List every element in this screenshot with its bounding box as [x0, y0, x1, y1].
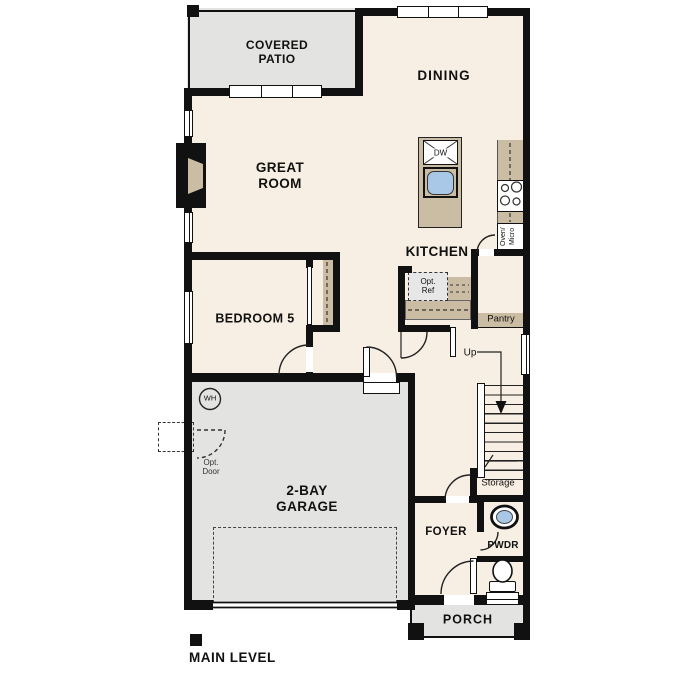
- wall-segment: [471, 249, 478, 329]
- window: [184, 291, 193, 344]
- wall-segment: [477, 502, 484, 532]
- annotation-opt-ref: Opt. Ref: [420, 277, 435, 295]
- room-label-foyer: FOYER: [425, 526, 467, 540]
- island-sink-basin: [427, 171, 454, 195]
- wall-segment: [408, 595, 443, 605]
- window: [521, 334, 530, 375]
- wall-segment: [470, 468, 477, 503]
- hall-door-jamb: [450, 327, 456, 357]
- front-door-leaf: [470, 558, 477, 594]
- stair-stringer: [477, 383, 485, 478]
- room-label-great-room: GREAT ROOM: [256, 160, 304, 192]
- window-mullion: [458, 7, 459, 17]
- wall-segment: [184, 600, 213, 610]
- garage-entry-threshold: [363, 382, 400, 394]
- patio-post: [187, 5, 199, 17]
- kitchen-nook-counter-side: [448, 277, 471, 300]
- room-label-bedroom-5: BEDROOM 5: [215, 312, 294, 327]
- wall-segment: [306, 325, 340, 332]
- room-label-powder: PWDR: [487, 540, 518, 552]
- wall-segment: [408, 380, 415, 605]
- window-mullion: [261, 86, 262, 97]
- front-door-opening: [443, 595, 475, 605]
- pantry-door-opening: [478, 249, 495, 256]
- garage-door-track-area: [213, 527, 397, 603]
- oven-micro-label: Oven/ Micro: [499, 224, 522, 249]
- plan-title: MAIN LEVEL: [189, 650, 276, 665]
- bedroom-door-opening: [306, 346, 313, 373]
- title-marker: [190, 634, 202, 646]
- wall-segment: [523, 8, 530, 640]
- porch-post: [408, 623, 424, 640]
- toilet-tank: [489, 581, 516, 592]
- closet-door-leaf: [307, 266, 312, 325]
- window: [184, 212, 193, 243]
- annotation-opt-door: Opt. Door: [202, 458, 219, 476]
- annotation-water-heater: WH: [204, 395, 217, 404]
- room-label-garage: 2-BAY GARAGE: [276, 483, 338, 515]
- wall-segment: [518, 595, 530, 605]
- window-mullion: [428, 7, 429, 17]
- wall-segment: [355, 8, 363, 96]
- window-mullion: [292, 86, 293, 97]
- annotation-dishwasher: DW: [433, 148, 448, 157]
- wall-segment: [415, 496, 445, 503]
- window: [229, 85, 322, 98]
- storage-door-opening: [445, 496, 470, 503]
- wall-segment: [495, 249, 523, 256]
- garage-entry-door-leaf: [363, 347, 370, 377]
- room-label-dining: DINING: [417, 68, 470, 84]
- wall-segment: [398, 266, 405, 332]
- room-label-porch: PORCH: [443, 613, 493, 628]
- wall-segment: [333, 252, 340, 332]
- wall-segment: [477, 495, 523, 502]
- stair-treads: [485, 385, 523, 480]
- floor-plan: Oven/ Micro: [0, 0, 687, 687]
- window: [184, 110, 193, 137]
- wall-segment: [398, 266, 412, 273]
- window: [486, 592, 519, 605]
- wall-segment: [192, 252, 340, 260]
- wall-segment: [398, 325, 450, 332]
- porch-post: [514, 623, 530, 640]
- annotation-up: Up: [464, 347, 477, 359]
- kitchen-nook-counter: [405, 300, 471, 320]
- wall-segment: [477, 556, 523, 562]
- wall-segment: [306, 332, 313, 347]
- cooktop-box: [497, 180, 524, 212]
- fireplace: [176, 143, 206, 208]
- room-label-covered-patio: COVERED PATIO: [246, 38, 308, 66]
- room-label-kitchen: KITCHEN: [406, 244, 469, 260]
- oven-micro-box: Oven/ Micro: [497, 223, 524, 250]
- annotation-storage: Storage: [481, 479, 514, 490]
- annotation-pantry: Pantry: [487, 315, 514, 326]
- window: [397, 6, 488, 18]
